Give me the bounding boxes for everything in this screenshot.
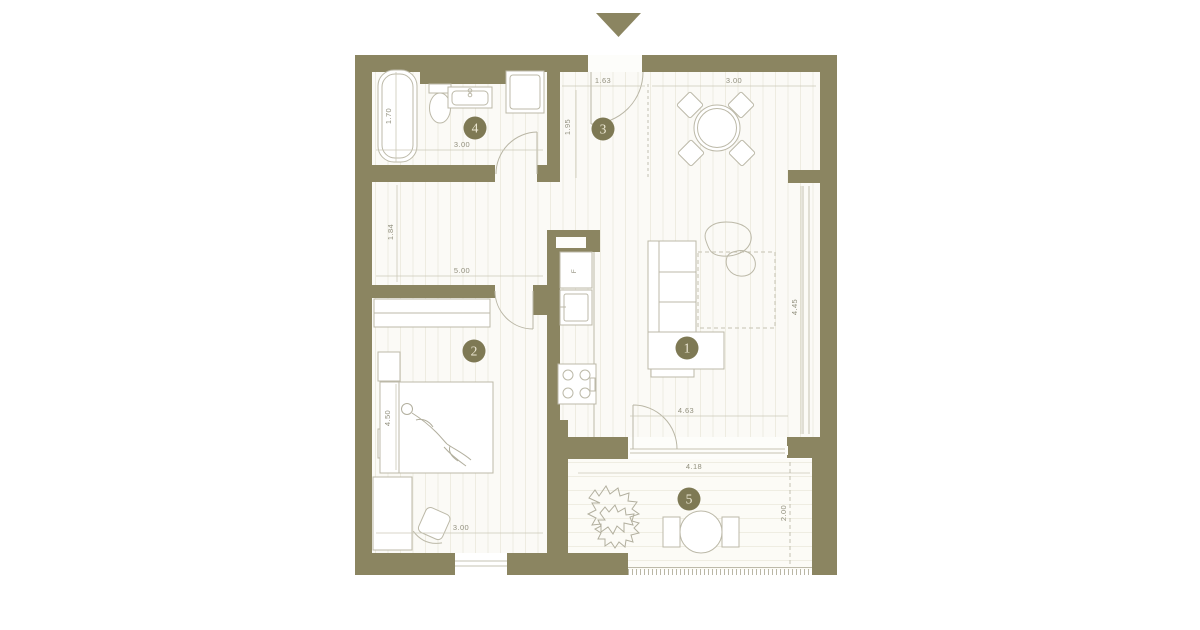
dim-balcony-depth: 2.00 bbox=[779, 505, 788, 521]
wall-segment bbox=[355, 553, 455, 575]
bed bbox=[380, 382, 493, 473]
room-number-hall: 3 bbox=[600, 122, 607, 137]
stove bbox=[558, 364, 596, 404]
room-number-living: 1 bbox=[684, 341, 691, 356]
wall-segment bbox=[547, 55, 560, 182]
floor-plan-page: 1.63 3.00 1.95 1.70 3.00 1.84 5.00 4.50 … bbox=[0, 0, 1200, 630]
dim-corridor-depth: 1.84 bbox=[386, 224, 395, 240]
washing-machine bbox=[506, 71, 544, 113]
fridge-label: F bbox=[571, 269, 578, 273]
dim-living-depth: 4.45 bbox=[790, 299, 799, 315]
floor-plan: 1.63 3.00 1.95 1.70 3.00 1.84 5.00 4.50 … bbox=[0, 0, 1200, 630]
room-number-bedroom: 2 bbox=[471, 344, 478, 359]
wall-segment bbox=[642, 55, 837, 72]
wall-segment bbox=[507, 553, 628, 575]
wall-segment bbox=[560, 437, 628, 459]
wall-segment bbox=[355, 55, 372, 575]
dim-hall-width: 1.63 bbox=[595, 76, 611, 85]
balcony-wall-notch bbox=[783, 446, 788, 455]
dining-table bbox=[694, 105, 740, 151]
wall-segment bbox=[547, 230, 560, 438]
wall-segment bbox=[537, 165, 560, 182]
dim-bathroom-width: 3.00 bbox=[454, 140, 470, 149]
bathroom-sink bbox=[448, 87, 492, 108]
wall-segment bbox=[812, 437, 837, 575]
desk bbox=[373, 477, 412, 550]
dim-hall-depth: 1.95 bbox=[563, 119, 572, 135]
dim-corridor-length: 5.00 bbox=[454, 266, 470, 275]
wall-segment bbox=[788, 170, 820, 183]
dim-living-width: 4.63 bbox=[678, 406, 694, 415]
wardrobe bbox=[374, 299, 490, 327]
kitchen-sink bbox=[560, 290, 592, 325]
cistern-niche bbox=[420, 66, 506, 84]
wall-segment bbox=[372, 165, 495, 182]
entrance-arrow-icon bbox=[596, 13, 641, 37]
dim-bathtub-length: 1.70 bbox=[384, 108, 393, 124]
wall-segment bbox=[820, 55, 837, 437]
nightstand bbox=[378, 352, 400, 381]
wall-segment bbox=[533, 285, 558, 315]
room-number-balcony: 5 bbox=[686, 492, 693, 507]
balcony-chair bbox=[663, 517, 680, 547]
room-number-bathroom: 4 bbox=[472, 121, 479, 136]
dim-dining-width: 3.00 bbox=[726, 76, 742, 85]
floor-balcony-door-strip bbox=[628, 437, 787, 459]
balcony-chair bbox=[722, 517, 739, 547]
kitchen-niche-inset bbox=[556, 237, 586, 248]
dim-balcony-width: 4.18 bbox=[686, 462, 702, 471]
bedroom-window bbox=[455, 553, 507, 575]
entrance-opening bbox=[588, 55, 642, 72]
balcony-table bbox=[680, 511, 722, 553]
wall-segment bbox=[372, 285, 495, 298]
wall-segment bbox=[787, 437, 812, 458]
dim-bedroom-width: 3.00 bbox=[453, 523, 469, 532]
dim-bed-wall: 4.50 bbox=[383, 410, 392, 426]
